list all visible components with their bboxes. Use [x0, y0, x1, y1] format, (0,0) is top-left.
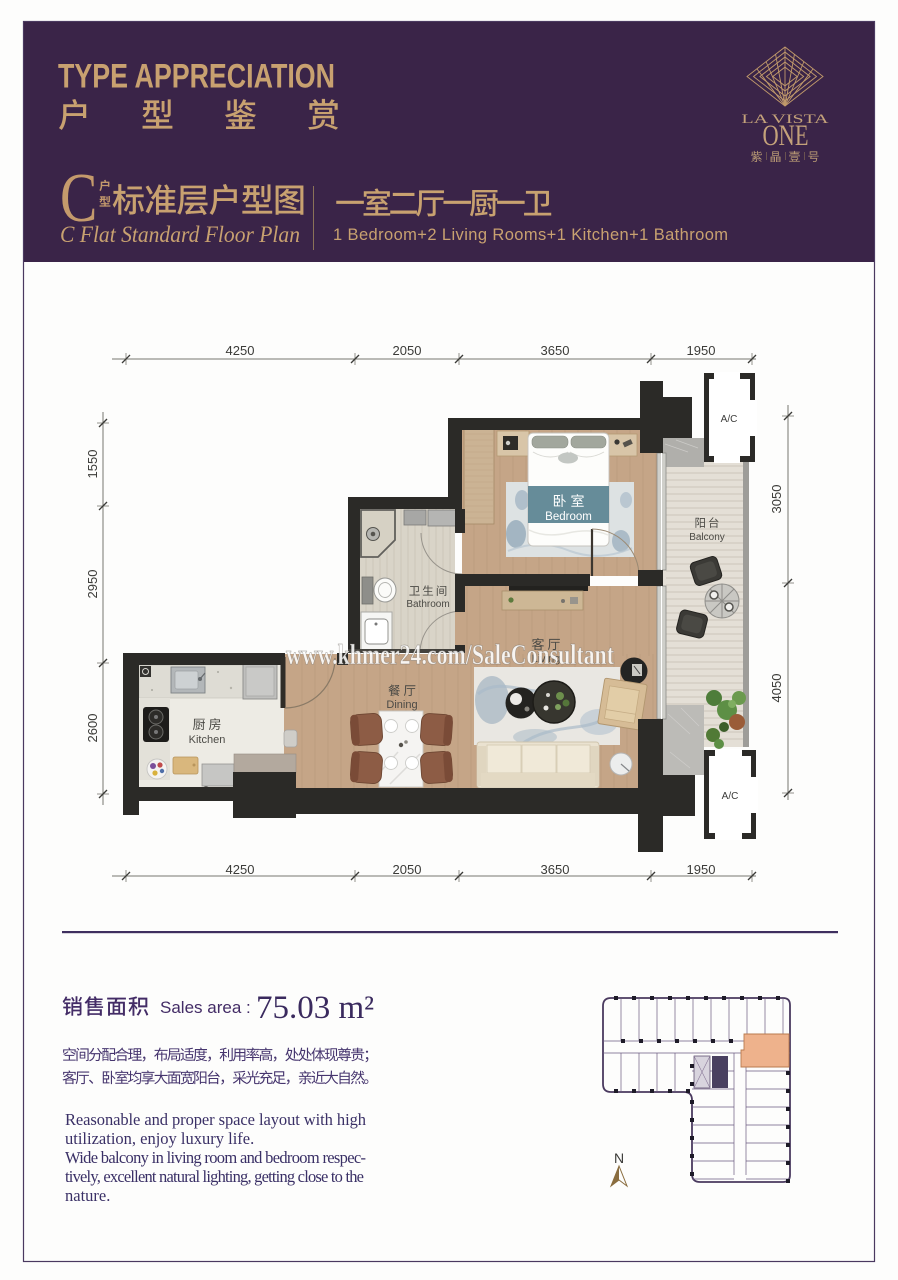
- svg-text:Sales area :: Sales area :: [160, 998, 251, 1017]
- svg-text:1950: 1950: [687, 343, 716, 358]
- svg-text:1 Bedroom+2 Living Rooms+1 Kit: 1 Bedroom+2 Living Rooms+1 Kitchen+1 Bat…: [333, 226, 728, 244]
- svg-text:Reasonable and proper space la: Reasonable and proper space layout with …: [65, 1110, 367, 1129]
- svg-text:tively, excellent natural ligh: tively, excellent natural lighting, gett…: [65, 1167, 364, 1186]
- svg-text:Balcony: Balcony: [689, 532, 725, 543]
- svg-text:C Flat Standard Floor Plan: C Flat Standard Floor Plan: [60, 222, 300, 247]
- svg-text:Bathroom: Bathroom: [406, 599, 449, 610]
- svg-text:A/C: A/C: [721, 414, 738, 425]
- svg-text:Wide balcony in living room an: Wide balcony in living room and bedroom …: [65, 1148, 366, 1167]
- svg-text:Dining: Dining: [386, 699, 417, 711]
- svg-text:3650: 3650: [541, 343, 570, 358]
- svg-text:4050: 4050: [769, 674, 784, 703]
- svg-text:2950: 2950: [85, 570, 100, 599]
- svg-text:75.03 m²: 75.03 m²: [256, 990, 374, 1026]
- svg-text:Kitchen: Kitchen: [189, 734, 226, 746]
- svg-text:nature.: nature.: [65, 1186, 110, 1205]
- svg-text:4250: 4250: [226, 343, 255, 358]
- svg-text:A/C: A/C: [722, 791, 739, 802]
- svg-text:2050: 2050: [393, 862, 422, 877]
- svg-text:3050: 3050: [769, 485, 784, 514]
- svg-text:Bedroom: Bedroom: [545, 511, 592, 523]
- svg-text:1950: 1950: [687, 862, 716, 877]
- svg-text:www.khmer24.com/SaleConsultant: www.khmer24.com/SaleConsultant: [286, 639, 614, 671]
- svg-text:3650: 3650: [541, 862, 570, 877]
- svg-text:2050: 2050: [393, 343, 422, 358]
- svg-text:utilization, enjoy luxury life: utilization, enjoy luxury life.: [65, 1129, 254, 1148]
- svg-text:2600: 2600: [85, 714, 100, 743]
- svg-text:4250: 4250: [226, 862, 255, 877]
- svg-text:N: N: [614, 1150, 624, 1166]
- svg-text:1550: 1550: [85, 450, 100, 479]
- svg-text:ONE: ONE: [763, 119, 809, 152]
- svg-text:TYPE APPRECIATION: TYPE APPRECIATION: [58, 58, 335, 96]
